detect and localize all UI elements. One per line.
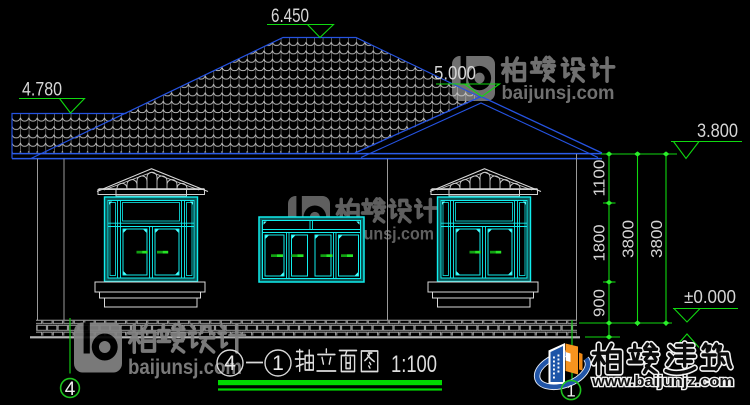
svg-text:1: 1 (272, 352, 284, 375)
svg-text:4: 4 (224, 352, 236, 375)
svg-text:1800: 1800 (592, 224, 609, 261)
svg-text:3800: 3800 (621, 220, 638, 258)
svg-text:1100: 1100 (592, 159, 609, 196)
svg-text:5.000: 5.000 (434, 64, 476, 85)
svg-text:4: 4 (65, 379, 76, 400)
svg-text:1:100: 1:100 (391, 351, 437, 378)
svg-text:6.450: 6.450 (271, 6, 309, 27)
svg-text:baijunsj.com: baijunsj.com (502, 83, 615, 104)
svg-text:www.baijunjz.com: www.baijunjz.com (591, 374, 734, 390)
svg-text:3.800: 3.800 (697, 121, 738, 142)
svg-text:900: 900 (592, 289, 609, 317)
svg-text:1: 1 (566, 382, 575, 401)
svg-text:±0.000: ±0.000 (684, 287, 736, 307)
svg-text:3800: 3800 (649, 220, 666, 258)
svg-text:4.780: 4.780 (22, 80, 62, 101)
